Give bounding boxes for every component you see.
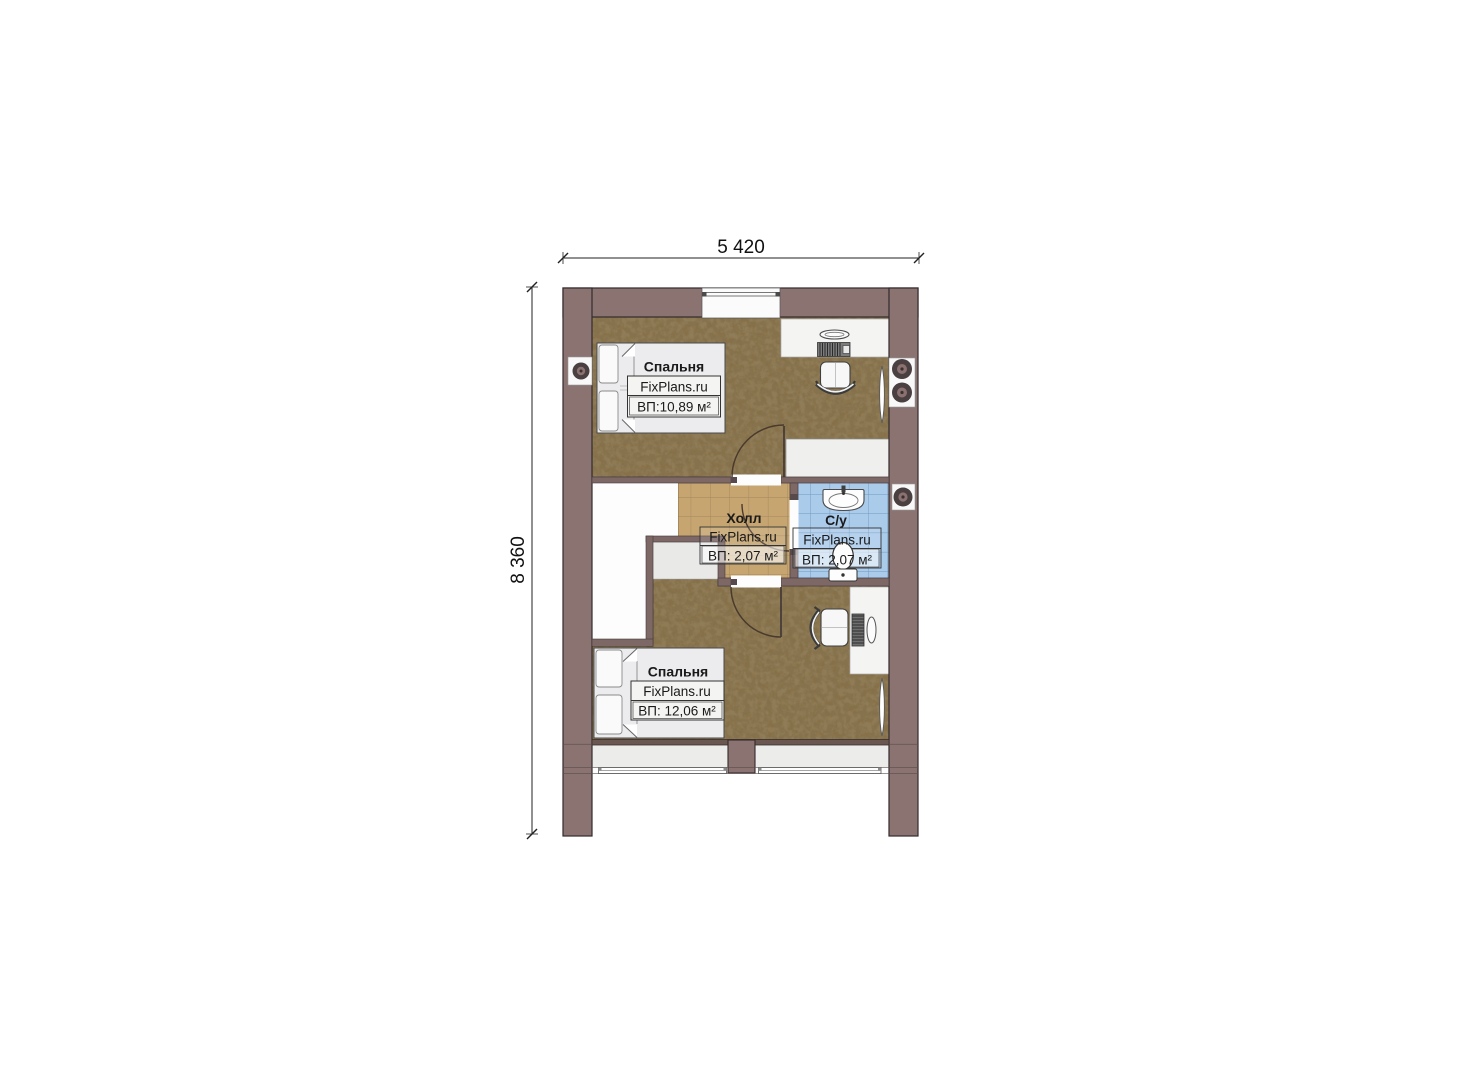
svg-text:ВП: 2,07 м²: ВП: 2,07 м² — [708, 549, 779, 564]
svg-text:FixPlans.ru: FixPlans.ru — [709, 530, 777, 545]
svg-text:FixPlans.ru: FixPlans.ru — [640, 380, 708, 395]
svg-text:ВП: 12,06 м²: ВП: 12,06 м² — [638, 704, 716, 719]
svg-text:FixPlans.ru: FixPlans.ru — [643, 684, 711, 699]
svg-text:С/у: С/у — [825, 512, 847, 528]
svg-text:FixPlans.ru: FixPlans.ru — [803, 533, 871, 548]
svg-text:Спальня: Спальня — [648, 664, 708, 680]
svg-text:ВП: 2,07 м²: ВП: 2,07 м² — [802, 553, 873, 568]
svg-text:8 360: 8 360 — [508, 536, 529, 584]
svg-text:ВП:10,89 м²: ВП:10,89 м² — [637, 400, 711, 415]
svg-text:Холл: Холл — [726, 510, 761, 526]
svg-text:5 420: 5 420 — [717, 237, 765, 258]
svg-text:Спальня: Спальня — [644, 359, 704, 375]
